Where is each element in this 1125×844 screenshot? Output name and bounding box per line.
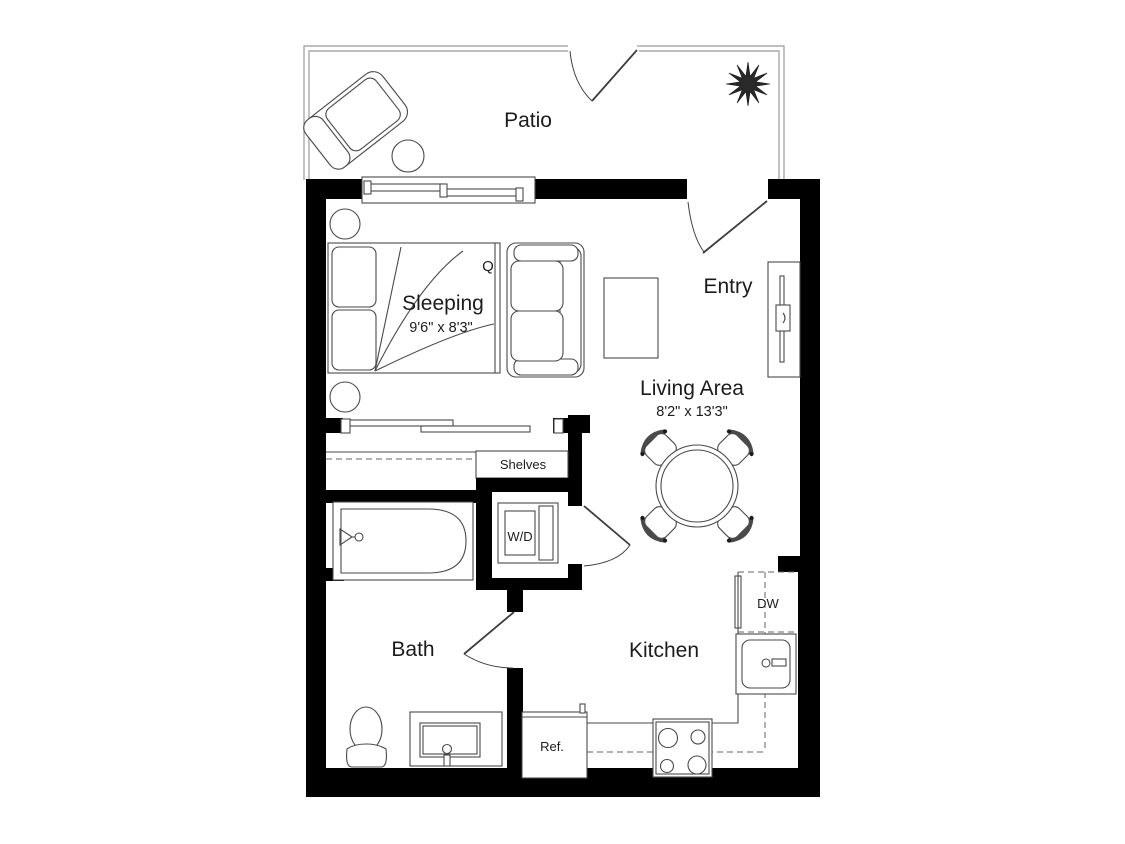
patio-label: Patio [504,109,552,132]
wd-wall-left [476,492,492,590]
stove [653,719,712,777]
floor-plan: Patio [0,0,1125,844]
refrigerator: Ref. [522,704,587,778]
sink-faucet-icon [762,659,770,667]
shelves-label: Shelves [500,457,547,472]
bath-kitchen-wall-lower [507,668,523,768]
washer-dryer: W/D [498,503,558,563]
living-label: Living Area [640,377,744,400]
patio-sliding-door [362,177,535,203]
sofa [507,243,584,377]
wall-right-lower [798,572,820,797]
entry-label: Entry [703,275,753,298]
wd-door-arc [584,545,630,566]
sleeping-dimensions: 9'6" x 8'3" [409,320,472,336]
kitchen-sink [736,634,796,694]
bath-wall-top [306,490,476,503]
patio-area: Patio [300,46,784,180]
toilet [347,707,387,767]
wall-right-upper [800,179,820,556]
patio-gate-leaf [592,50,637,101]
wd-wall-top [476,478,582,492]
bathtub [333,502,473,580]
patio-side-table [392,140,424,172]
wd-wall-right-bottom [568,564,582,590]
tv-console [768,262,800,377]
bath-door-leaf [464,612,514,654]
bed-size-tag: Q [482,258,494,275]
wall-right-step [778,556,820,572]
wd-wall-right-top [568,492,582,506]
refrigerator-label: Ref. [540,739,564,754]
living-dimensions: 8'2" x 13'3" [656,404,727,420]
vanity-faucet-icon [443,745,452,754]
kitchen-area: Kitchen DW Ref. [522,572,796,778]
wd-door-leaf [584,506,630,545]
dishwasher-label: DW [757,596,779,611]
shelves-unit: Shelves [476,451,568,478]
dishwasher: DW [735,576,780,628]
dining-set [637,426,756,545]
living-area: Entry Living Area 8'2" x 13'3" [604,201,800,546]
sleeping-label: Sleeping [402,292,484,315]
bath-kitchen-wall-upper [507,590,523,612]
patio-gate-arc [570,51,592,101]
washer-dryer-label: W/D [507,529,532,544]
dining-table [656,445,738,527]
bath-vanity [410,712,502,766]
closet-sliding-door [341,419,563,433]
wall-top-mid [534,179,687,199]
entry-door-leaf [703,201,767,253]
bath-label: Bath [391,638,434,661]
bath-door-arc [464,654,513,668]
plant-icon [726,62,770,106]
wall-left [306,179,326,797]
nightstand-bottom [330,382,360,412]
floor-plan-drawing: Patio [0,0,1125,844]
closet-door-stub-left [323,418,343,433]
wd-wall-bottom [476,578,582,590]
nightstand-top [330,209,360,239]
kitchen-label: Kitchen [629,639,699,662]
laundry-closet: W/D [476,478,630,590]
coffee-table [604,278,658,358]
entry-door-arc [688,202,704,252]
sleeping-area: Q Sleeping 9'6" x 8'3" [328,177,584,412]
